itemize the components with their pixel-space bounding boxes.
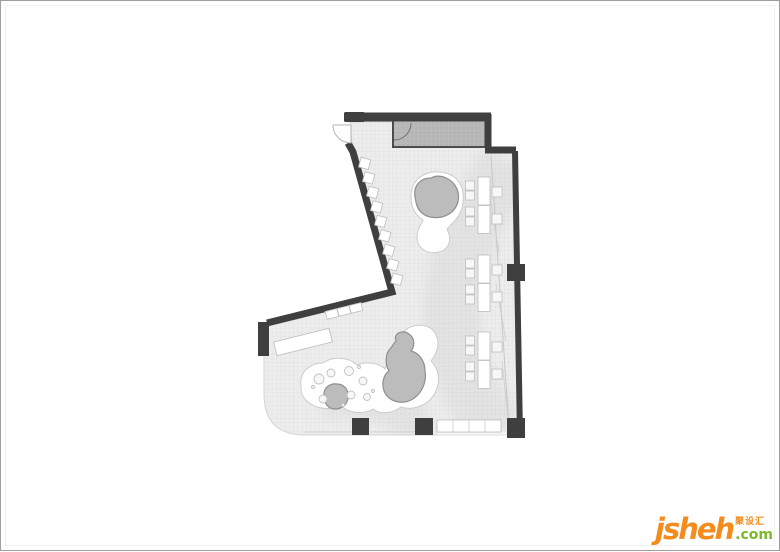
stool (367, 186, 379, 198)
chair (466, 181, 475, 190)
deco-dot (312, 386, 315, 389)
logo-tld-text: .com (735, 528, 773, 542)
desk (478, 255, 490, 283)
deco-dot (358, 366, 361, 369)
chair (492, 342, 502, 352)
page: jsheh 聚设汇 .com (0, 0, 780, 551)
entry-door-swing-icon (333, 125, 351, 143)
column (415, 418, 433, 435)
stool (375, 215, 387, 227)
service-core (393, 118, 488, 147)
chair (466, 217, 475, 226)
chair (492, 292, 502, 302)
core-grid (393, 118, 488, 147)
floor-plan (1, 1, 780, 552)
desk (478, 177, 490, 205)
chair (466, 191, 475, 200)
stool (359, 377, 367, 385)
stool (383, 244, 395, 256)
column (352, 418, 369, 435)
stool (345, 367, 354, 376)
stool (387, 259, 399, 271)
chair (466, 207, 475, 216)
chair (466, 372, 475, 381)
chair (466, 285, 475, 294)
logo-chinese-text: 聚设汇 (735, 518, 765, 527)
stool (347, 391, 355, 399)
stool (379, 230, 391, 242)
chair (466, 336, 475, 345)
stool (327, 369, 335, 377)
chair (492, 214, 502, 224)
chair (492, 265, 502, 275)
chair (466, 259, 475, 268)
stool (391, 273, 403, 285)
chair (466, 295, 475, 304)
stool (364, 394, 371, 401)
stool (359, 157, 371, 169)
column (507, 418, 525, 438)
stool (319, 395, 327, 403)
jsheh-logo[interactable]: jsheh 聚设汇 .com (655, 515, 773, 544)
door-jamb (345, 112, 364, 122)
desk (478, 361, 490, 389)
deco-dot (372, 390, 375, 393)
chair (466, 269, 475, 278)
logo-brand-text: jsheh (655, 515, 733, 544)
desk (478, 284, 490, 312)
chair (492, 369, 502, 379)
chair (466, 346, 475, 355)
deco-dot (342, 404, 345, 407)
logo-right-block: 聚设汇 .com (735, 518, 773, 544)
wall-end-cap (258, 322, 269, 356)
stool (363, 172, 375, 184)
desk (478, 332, 490, 360)
stool (371, 201, 383, 213)
desk (478, 206, 490, 234)
chair (492, 187, 502, 197)
stool (314, 374, 324, 384)
tree-canopy-icon (415, 176, 459, 217)
chair (466, 362, 475, 371)
column (507, 264, 525, 281)
